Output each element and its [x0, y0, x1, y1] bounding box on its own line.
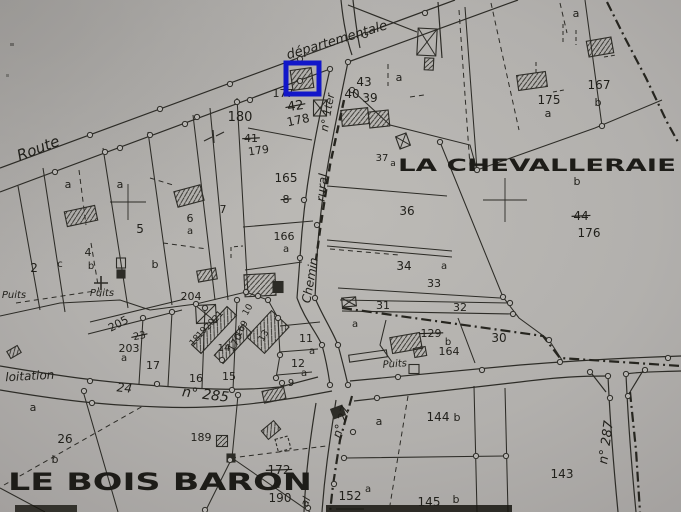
parcel-number: b: [88, 261, 94, 272]
svg-text:30: 30: [491, 331, 506, 345]
parcel-number: a: [545, 107, 552, 120]
parcel-number: 189: [191, 431, 212, 444]
svg-text:a: a: [441, 261, 447, 272]
svg-text:b: b: [52, 453, 59, 466]
survey-point: [89, 400, 94, 405]
survey-point: [52, 169, 57, 174]
survey-point: [265, 297, 270, 302]
svg-text:144: 144: [427, 410, 450, 424]
survey-point: [194, 114, 199, 119]
parcel-number: 17: [146, 359, 160, 372]
parcel-number: a: [390, 159, 396, 169]
parcel-number: 15: [222, 370, 236, 383]
survey-point: [273, 375, 278, 380]
svg-text:a: a: [30, 401, 37, 414]
svg-text:11: 11: [299, 332, 313, 345]
building: [273, 282, 283, 293]
road-label: loitation: [5, 368, 55, 385]
building: [368, 110, 390, 128]
svg-text:Puits: Puits: [90, 288, 114, 299]
survey-point: [327, 66, 332, 71]
survey-point: [81, 388, 86, 393]
svg-text:152: 152: [339, 489, 362, 503]
parcel-number: a: [117, 178, 124, 191]
svg-text:5: 5: [136, 222, 144, 236]
parcel-number: a: [30, 401, 37, 414]
svg-text:b: b: [595, 96, 602, 109]
survey-point: [395, 374, 400, 379]
survey-point: [335, 342, 340, 347]
svg-text:32: 32: [453, 301, 467, 314]
survey-point: [625, 393, 630, 398]
svg-text:145: 145: [418, 495, 441, 509]
survey-point: [87, 132, 92, 137]
svg-text:a: a: [301, 368, 307, 379]
survey-point: [147, 132, 152, 137]
svg-text:167: 167: [588, 78, 611, 92]
well-label: Puits: [382, 358, 407, 371]
svg-text:4: 4: [85, 246, 92, 259]
svg-text:165: 165: [275, 171, 298, 185]
svg-text:a: a: [365, 484, 371, 495]
survey-point: [599, 123, 604, 128]
parcel-number: 204: [181, 290, 202, 303]
parcel-number: 26: [57, 432, 72, 446]
svg-text:164: 164: [439, 345, 460, 358]
well-label: Puits: [2, 290, 26, 301]
svg-text:Puits: Puits: [2, 290, 26, 301]
survey-point: [277, 352, 282, 357]
place-name: LE BOIS BARON: [8, 468, 312, 496]
road-label: 24: [116, 380, 133, 396]
parcel-number: b: [595, 96, 602, 109]
survey-point: [500, 294, 505, 299]
cadastral-map-screenshot: 1801774217841179434039a37a1658166a3634a3…: [0, 0, 681, 512]
parcel-number: 5: [136, 222, 144, 236]
parcel-number: a: [309, 346, 315, 357]
survey-point: [275, 315, 280, 320]
svg-text:40: 40: [344, 87, 359, 101]
svg-text:a: a: [545, 107, 552, 120]
parcel-number: 176: [578, 226, 601, 240]
survey-point: [234, 297, 239, 302]
svg-text:39: 39: [362, 91, 377, 105]
parcel-number: a: [396, 71, 403, 84]
svg-text:b: b: [88, 261, 94, 272]
survey-point: [169, 309, 174, 314]
parcel-number: 36: [399, 204, 414, 218]
survey-point: [341, 455, 346, 460]
svg-text:31: 31: [376, 299, 390, 312]
survey-point: [297, 255, 302, 260]
svg-text:a: a: [376, 415, 383, 428]
survey-point: [102, 149, 107, 154]
survey-point: [327, 382, 332, 387]
svg-text:Puits: Puits: [382, 358, 407, 371]
survey-point: [605, 373, 610, 378]
parcel-number: 32: [453, 301, 467, 314]
parcel-number: 41: [242, 132, 260, 145]
svg-text:b: b: [454, 411, 461, 424]
svg-text:26: 26: [57, 432, 72, 446]
parcel-number: 144: [427, 410, 450, 424]
scan-speck: [10, 43, 14, 46]
svg-text:15: 15: [222, 370, 236, 383]
svg-text:a: a: [187, 226, 193, 237]
parcel-number: 11: [299, 332, 313, 345]
svg-text:6: 6: [187, 212, 194, 225]
survey-point: [546, 337, 551, 342]
building: [517, 72, 548, 91]
svg-text:17: 17: [146, 359, 160, 372]
survey-point: [243, 289, 248, 294]
svg-text:b: b: [574, 175, 581, 188]
parcel-number: 129: [419, 327, 443, 340]
parcel-number: 6: [187, 212, 194, 225]
svg-text:175: 175: [538, 93, 561, 107]
survey-point: [479, 367, 484, 372]
parcel-number: 152: [339, 489, 362, 503]
parcel-number: 143: [551, 467, 574, 481]
survey-point: [154, 381, 159, 386]
building: [341, 108, 370, 127]
survey-point: [202, 507, 207, 512]
svg-text:a: a: [283, 244, 289, 255]
parcel-number: 175: [538, 93, 561, 107]
svg-text:b: b: [453, 493, 460, 506]
parcel-number: 4: [85, 246, 92, 259]
survey-point: [345, 59, 350, 64]
parcel-number: a: [352, 319, 358, 330]
svg-text:c: c: [57, 259, 63, 270]
building: [117, 270, 125, 278]
svg-text:2: 2: [30, 261, 38, 275]
survey-point: [331, 481, 336, 486]
survey-point: [117, 145, 122, 150]
parcel-number: a: [187, 226, 193, 237]
svg-text:b: b: [152, 258, 159, 271]
svg-text:a: a: [309, 346, 315, 357]
parcel-number: 145: [418, 495, 441, 509]
parcel-number: 2: [30, 261, 38, 275]
parcel-number: 30: [491, 331, 506, 345]
svg-text:rural: rural: [314, 172, 331, 202]
parcel-number: a: [283, 244, 289, 255]
survey-point: [623, 371, 628, 376]
parcel-number: 34: [396, 259, 411, 273]
parcel-number: a: [121, 353, 127, 364]
survey-point: [297, 78, 302, 83]
svg-text:16: 16: [189, 372, 203, 385]
survey-point: [473, 453, 478, 458]
survey-point: [219, 357, 224, 362]
parcel-number: a: [301, 368, 307, 379]
parcel-number: b: [453, 493, 460, 506]
survey-point: [301, 197, 306, 202]
survey-point: [510, 311, 515, 316]
parcel-number: 44: [572, 209, 591, 223]
svg-text:36: 36: [399, 204, 414, 218]
survey-point: [587, 369, 592, 374]
parcel-number: 16: [189, 372, 203, 385]
parcel-number: 33: [427, 277, 441, 290]
parcel-number: 31: [376, 299, 390, 312]
parcel-number: 166: [274, 230, 295, 243]
survey-point: [422, 10, 427, 15]
svg-text:a: a: [121, 353, 127, 364]
survey-point: [642, 367, 647, 372]
survey-point: [319, 342, 324, 347]
svg-text:a: a: [117, 178, 124, 191]
svg-text:34: 34: [396, 259, 411, 273]
building: [413, 347, 426, 358]
svg-text:a: a: [573, 7, 580, 20]
survey-point: [345, 382, 350, 387]
parcel-number: a: [365, 484, 371, 495]
svg-text:7: 7: [220, 203, 227, 216]
svg-text:204: 204: [181, 290, 202, 303]
survey-point: [507, 300, 512, 305]
svg-text:33: 33: [427, 277, 441, 290]
svg-text:9: 9: [288, 378, 294, 389]
road-label: rural: [314, 172, 331, 202]
survey-point: [607, 395, 612, 400]
parcel-number: 39: [362, 91, 377, 105]
svg-text:loitation: loitation: [5, 368, 55, 385]
parcel-number: 7: [220, 203, 227, 216]
survey-point: [557, 359, 562, 364]
survey-point: [314, 222, 319, 227]
parcel-number: 37: [376, 153, 389, 164]
parcel-number: 167: [588, 78, 611, 92]
parcel-number: b: [454, 411, 461, 424]
survey-point: [437, 139, 442, 144]
svg-text:166: 166: [274, 230, 295, 243]
survey-point: [279, 380, 284, 385]
svg-text:a: a: [65, 178, 72, 191]
survey-point: [202, 305, 207, 310]
svg-text:176: 176: [578, 226, 601, 240]
parcel-number: a: [573, 7, 580, 20]
cadastral-map: 1801774217841179434039a37a1658166a3634a3…: [0, 0, 681, 512]
survey-point: [227, 457, 232, 462]
survey-point: [182, 121, 187, 126]
parcel-number: 40: [344, 87, 359, 101]
survey-point: [157, 106, 162, 111]
survey-point: [350, 429, 355, 434]
svg-text:24: 24: [116, 380, 133, 396]
scan-speck: [6, 74, 9, 77]
place-name: LA CHEVALLERAIE: [398, 156, 676, 176]
parcel-number: a: [376, 415, 383, 428]
survey-point: [140, 315, 145, 320]
parcel-number: a: [65, 178, 72, 191]
parcel-number: 164: [439, 345, 460, 358]
survey-point: [87, 378, 92, 383]
survey-point: [665, 355, 670, 360]
parcel-number: b: [152, 258, 159, 271]
parcel-number: c: [57, 259, 63, 270]
parcel-number: 165: [275, 171, 298, 185]
svg-text:a: a: [352, 319, 358, 330]
parcel-number: 180: [228, 110, 253, 125]
svg-text:189: 189: [191, 431, 212, 444]
svg-text:37: 37: [376, 153, 389, 164]
survey-point: [234, 99, 239, 104]
svg-text:143: 143: [551, 467, 574, 481]
survey-point: [247, 97, 252, 102]
svg-text:a: a: [396, 71, 403, 84]
svg-text:a: a: [390, 159, 396, 169]
parcel-number: b: [52, 453, 59, 466]
survey-point: [235, 392, 240, 397]
svg-text:180: 180: [228, 110, 253, 125]
survey-point: [255, 293, 260, 298]
building: [217, 436, 228, 447]
survey-point: [229, 387, 234, 392]
survey-point: [374, 395, 379, 400]
scan-edge-shadow: [15, 505, 77, 512]
building: [424, 58, 434, 70]
survey-point: [503, 453, 508, 458]
parcel-number: b: [574, 175, 581, 188]
parcel-number: a: [441, 261, 447, 272]
parcel-number: 9: [288, 378, 294, 389]
well-label: Puits: [90, 288, 114, 299]
survey-point: [227, 81, 232, 86]
